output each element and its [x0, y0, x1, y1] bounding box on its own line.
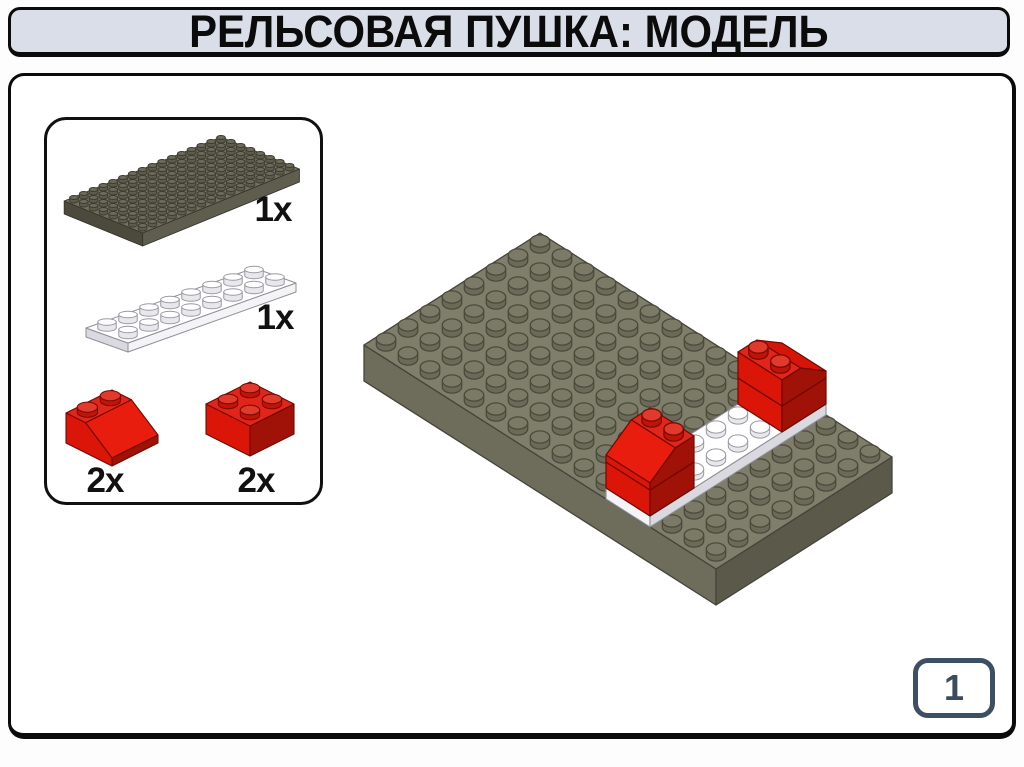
page-title: РЕЛЬСОВАЯ ПУШКА: МОДЕЛЬ	[189, 9, 829, 54]
content-panel: 1x 1x 2x 2x 1	[8, 73, 1016, 739]
title-bar: РЕЛЬСОВАЯ ПУШКА: МОДЕЛЬ	[8, 7, 1010, 57]
part-slope-2x2-icon	[60, 378, 168, 468]
page-number-badge: 1	[913, 658, 995, 718]
page-number: 1	[944, 670, 964, 706]
part-count-plate-2x8: 1x	[245, 300, 305, 337]
part-plate-8x16-icon	[58, 128, 305, 250]
part-brick-2x2-icon	[196, 372, 302, 462]
part-count-brick-2x2: 2x	[226, 463, 286, 500]
slide-background: РЕЛЬСОВАЯ ПУШКА: МОДЕЛЬ 1x 1x 2x 2x 1	[0, 0, 1024, 767]
part-count-slope-2x2: 2x	[75, 463, 135, 500]
parts-panel: 1x 1x 2x 2x	[44, 117, 323, 505]
part-count-plate-8x16: 1x	[243, 192, 303, 229]
